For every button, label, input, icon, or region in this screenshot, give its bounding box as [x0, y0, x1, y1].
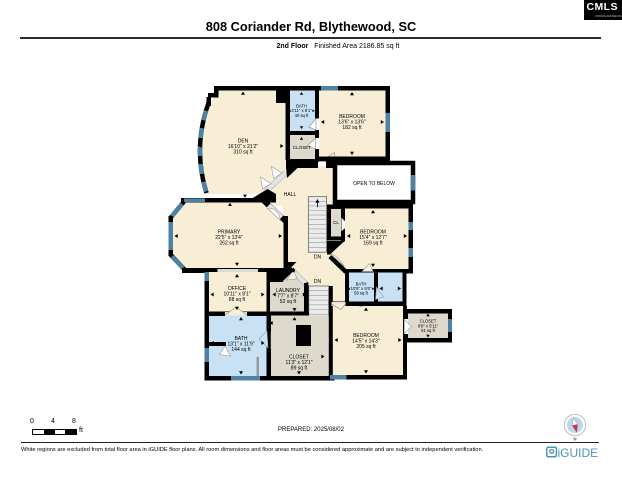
svg-text:169 sq ft: 169 sq ft: [363, 241, 383, 247]
svg-text:182 sq ft: 182 sq ft: [342, 125, 362, 131]
svg-text:CL: CL: [333, 220, 339, 225]
svg-text:CLOSET: CLOSET: [293, 145, 312, 150]
svg-text:58 sq ft: 58 sq ft: [354, 291, 369, 296]
svg-text:DN: DN: [314, 279, 322, 285]
svg-text:310 sq ft: 310 sq ft: [233, 150, 253, 156]
svg-text:89 sq ft: 89 sq ft: [291, 366, 308, 372]
svg-text:262 sq ft: 262 sq ft: [219, 241, 239, 247]
svg-text:40 sq ft: 40 sq ft: [295, 113, 310, 118]
svg-text:HALL: HALL: [284, 192, 297, 198]
svg-text:51 sq ft: 51 sq ft: [421, 328, 436, 333]
svg-text:DN: DN: [314, 255, 322, 261]
svg-text:205 sq ft: 205 sq ft: [356, 344, 376, 350]
svg-text:OPEN TO BELOW: OPEN TO BELOW: [353, 181, 395, 187]
svg-text:88 sq ft: 88 sq ft: [229, 297, 246, 303]
svg-text:iGUIDE: iGUIDE: [558, 445, 599, 459]
svg-text:52 sq ft: 52 sq ft: [280, 299, 297, 305]
svg-text:144 sq ft: 144 sq ft: [231, 347, 251, 353]
